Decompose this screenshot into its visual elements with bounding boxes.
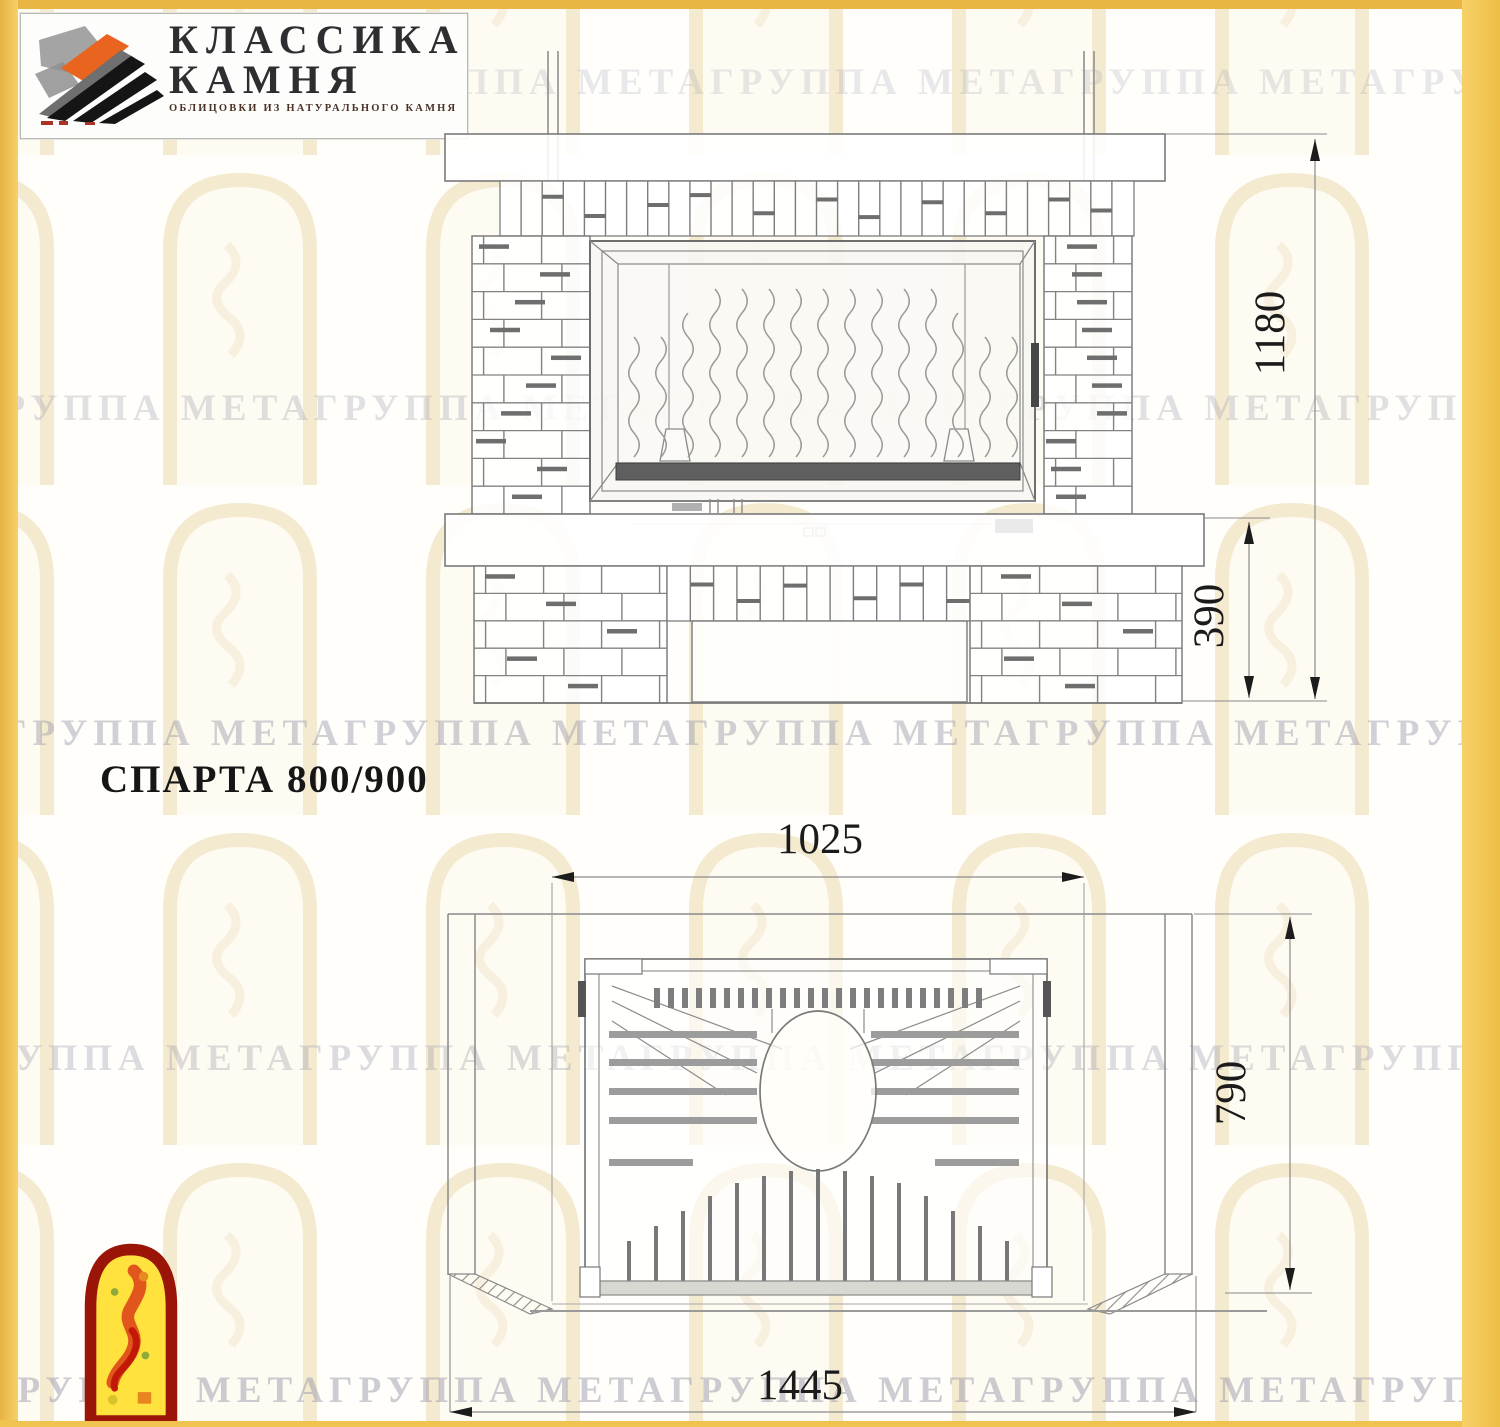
top-view-drawing [448, 883, 1267, 1314]
dim-front-base-height: 390 [1186, 584, 1233, 649]
catalog-page: ГРУППА МЕТАГРУППА МЕТАГРУППА МЕТАГРУППА … [0, 0, 1500, 1427]
technical-drawing: 1180 390 1025 790 1445 [0, 0, 1482, 1418]
dim-front-total-height: 1180 [1247, 291, 1294, 375]
front-view-drawing [445, 51, 1204, 703]
dim-top-total-width: 1445 [757, 1362, 843, 1409]
dim-top-depth: 790 [1208, 1061, 1255, 1126]
dim-top-opening-width: 1025 [777, 816, 863, 863]
